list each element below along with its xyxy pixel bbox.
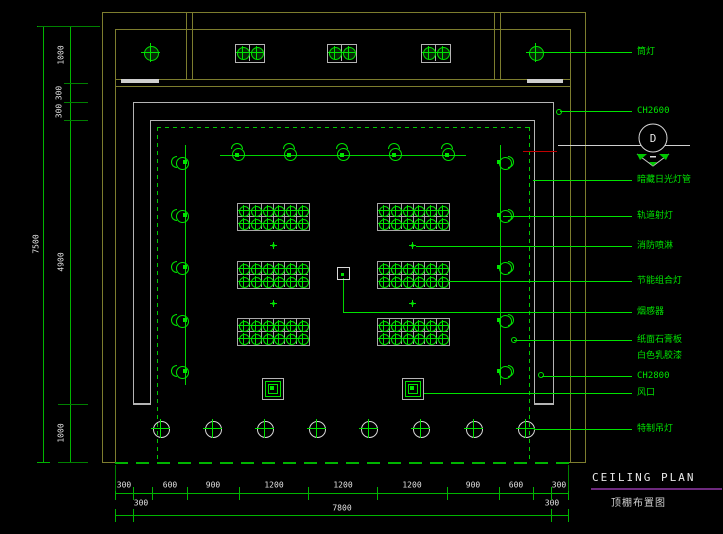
band-downlight-0-cross-v bbox=[150, 43, 151, 62]
combo-light-panel-1-2-lamp-4-0 bbox=[426, 321, 437, 332]
combo-light-panel-1-1-lamp-4-1 bbox=[426, 277, 437, 288]
combo-light-panel-0-2-lamp-1-0-cross-v bbox=[255, 320, 256, 331]
combo-light-panel-1-0-grid-h bbox=[377, 216, 448, 217]
combo-light-panel-1-1-lamp-2-0 bbox=[403, 264, 414, 275]
dim-bottom-1200-2: 1200 bbox=[333, 481, 352, 490]
bulkhead-inner-right bbox=[534, 120, 535, 404]
combo-light-panel-0-1-lamp-0-0-cross-v bbox=[243, 263, 244, 274]
band-divider-left-b bbox=[192, 12, 193, 80]
dim-tick-bottom-10 bbox=[551, 487, 552, 500]
combo-light-panel-1-0-lamp-4-1 bbox=[426, 219, 437, 230]
combo-light-panel-0-1-lamp-2-0-cross-v bbox=[267, 263, 268, 274]
combo-light-panel-1-1-lamp-0-1 bbox=[379, 277, 390, 288]
fire-sprinkler-1-dot bbox=[411, 244, 414, 247]
title-underline bbox=[591, 488, 722, 490]
dim-bottom-row2-left: 300 bbox=[134, 499, 148, 508]
leader-air-vent bbox=[424, 393, 632, 394]
combo-light-panel-1-2-lamp-2-1-cross-v bbox=[407, 333, 408, 344]
band-downlight-0 bbox=[144, 46, 159, 61]
band-downlight-1-cross-v bbox=[535, 43, 536, 62]
leader-concealed-fluorescent bbox=[533, 180, 632, 181]
legend-item-downlight: 筒灯 bbox=[637, 47, 655, 57]
combo-light-panel-0-0-lamp-0-0 bbox=[239, 206, 250, 217]
combo-light-panel-0-1-lamp-4-1-cross-v bbox=[290, 276, 291, 287]
combo-light-panel-1-0-lamp-5-1 bbox=[438, 219, 449, 230]
combo-light-panel-1-1-lamp-0-0 bbox=[379, 264, 390, 275]
band-double-light-0-a-cross-v bbox=[242, 46, 243, 59]
band-double-light-1-a-cross-v bbox=[334, 46, 335, 59]
combo-light-panel-1-0-lamp-2-0 bbox=[403, 206, 414, 217]
combo-light-panel-1-2-lamp-0-1 bbox=[379, 334, 390, 345]
combo-light-panel-0-2-lamp-0-0-cross-v bbox=[243, 320, 244, 331]
combo-light-panel-0-2-lamp-4-0-cross-v bbox=[290, 320, 291, 331]
combo-light-panel-0-1-lamp-5-1-cross-v bbox=[302, 276, 303, 287]
combo-light-panel-0-0-lamp-2-1 bbox=[263, 219, 274, 230]
band-double-light-2-b-cross-v bbox=[442, 46, 443, 59]
combo-light-panel-0-0-lamp-3-0-cross-v bbox=[278, 205, 279, 216]
combo-light-panel-0-1-grid-h bbox=[237, 274, 308, 275]
dim-bottom-900-2: 900 bbox=[466, 481, 480, 490]
dim-ext-bottom-left bbox=[115, 465, 116, 491]
track-spotlight-l-2-clamp bbox=[183, 265, 187, 269]
bulkhead-outer-left bbox=[133, 102, 134, 404]
combo-light-panel-1-1-lamp-3-0-cross-v bbox=[418, 263, 419, 274]
combo-light-panel-1-1-lamp-5-0 bbox=[438, 264, 449, 275]
combo-light-panel-0-0-lamp-2-1-cross-v bbox=[267, 218, 268, 229]
dim-bottom-1200-3: 1200 bbox=[402, 481, 421, 490]
dim-bottom-900-1: 900 bbox=[206, 481, 220, 490]
dim-left-300-1: 300 bbox=[55, 86, 64, 100]
legend-item-ch2800: CH2800 bbox=[637, 371, 670, 381]
combo-light-panel-0-0-lamp-0-0-cross-v bbox=[243, 205, 244, 216]
combo-light-panel-0-1-lamp-2-1 bbox=[263, 277, 274, 288]
smoke-detector-dot bbox=[341, 273, 344, 276]
combo-light-panel-1-0-lamp-5-1-cross-v bbox=[442, 218, 443, 229]
legend-item-gypsum-board: 纸面石膏板 bbox=[637, 335, 682, 345]
combo-light-panel-0-1-lamp-1-0 bbox=[251, 264, 262, 275]
track-spotlight-h-0-clamp bbox=[235, 153, 239, 157]
combo-light-panel-0-2-lamp-2-1-cross-v bbox=[267, 333, 268, 344]
combo-light-panel-1-0-lamp-4-0-cross-v bbox=[430, 205, 431, 216]
special-pendant-3-cross-v bbox=[316, 419, 317, 438]
combo-light-panel-1-1-lamp-5-1 bbox=[438, 277, 449, 288]
band-bottom-line-b bbox=[115, 86, 571, 87]
band-downlight-1 bbox=[529, 46, 544, 61]
combo-light-panel-0-0-lamp-3-0 bbox=[274, 206, 285, 217]
dim-tick-bottom-9 bbox=[533, 487, 534, 500]
detail-marker-letter: D bbox=[650, 132, 657, 145]
combo-light-panel-1-1-lamp-1-1-cross-v bbox=[395, 276, 396, 287]
combo-light-panel-0-1-lamp-5-1 bbox=[298, 277, 309, 288]
inner-wall-left bbox=[115, 29, 116, 463]
band-bottom-line-a bbox=[115, 79, 571, 80]
dim-line-left-total bbox=[43, 26, 44, 462]
combo-light-panel-0-0-lamp-5-0-cross-v bbox=[302, 205, 303, 216]
leader-fire-sprinkler bbox=[416, 246, 632, 247]
track-spotlight-l-4-clamp bbox=[183, 369, 187, 373]
combo-light-panel-0-2-lamp-2-0-cross-v bbox=[267, 320, 268, 331]
combo-light-panel-0-2-lamp-4-1-cross-v bbox=[290, 333, 291, 344]
combo-light-panel-1-0-lamp-2-1-cross-v bbox=[407, 218, 408, 229]
special-pendant-5 bbox=[413, 421, 430, 438]
track-spotlight-h-2-clamp bbox=[340, 153, 344, 157]
combo-light-panel-1-0-lamp-3-0-cross-v bbox=[418, 205, 419, 216]
combo-light-panel-1-2-lamp-2-0 bbox=[403, 321, 414, 332]
combo-light-panel-1-1-lamp-3-1-cross-v bbox=[418, 276, 419, 287]
combo-light-panel-1-2-lamp-1-1 bbox=[391, 334, 402, 345]
combo-light-panel-0-0-lamp-1-0-cross-v bbox=[255, 205, 256, 216]
combo-light-panel-1-1-lamp-2-1-cross-v bbox=[407, 276, 408, 287]
dim-tick-bottom-1 bbox=[133, 487, 134, 500]
track-spotlight-r-2-clamp bbox=[497, 265, 501, 269]
leader-track-spotlight bbox=[503, 216, 632, 217]
combo-light-panel-1-0-lamp-1-1-cross-v bbox=[395, 218, 396, 229]
combo-light-panel-0-1-lamp-3-1 bbox=[274, 277, 285, 288]
drawing-title-english: CEILING PLAN bbox=[592, 471, 695, 484]
dim-tick-bottom-3 bbox=[187, 487, 188, 500]
combo-light-panel-0-0-lamp-1-1-cross-v bbox=[255, 218, 256, 229]
special-pendant-2-cross-v bbox=[264, 419, 265, 438]
leader-dot-ch2600 bbox=[556, 109, 562, 115]
smoke-detector-leader-vertical bbox=[343, 278, 344, 312]
detail-marker-fill-right bbox=[659, 154, 669, 160]
dim-ext-left-5 bbox=[58, 462, 88, 463]
track-spotlight-r-1-clamp bbox=[497, 213, 501, 217]
leader-gypsum-board bbox=[514, 340, 632, 341]
special-pendant-7 bbox=[518, 421, 535, 438]
combo-light-panel-0-0-lamp-4-1-cross-v bbox=[290, 218, 291, 229]
band-divider-right-a bbox=[494, 12, 495, 80]
combo-light-panel-0-0-lamp-5-0 bbox=[298, 206, 309, 217]
combo-light-panel-0-2-lamp-5-0-cross-v bbox=[302, 320, 303, 331]
combo-light-panel-0-1-lamp-0-1 bbox=[239, 277, 250, 288]
band-double-light-0-b bbox=[251, 47, 264, 60]
combo-light-panel-1-1-lamp-2-0-cross-v bbox=[407, 263, 408, 274]
leader-smoke-detector bbox=[343, 312, 632, 313]
dim-left-1000-top: 1000 bbox=[57, 45, 66, 64]
bulkhead-outer-top bbox=[133, 102, 553, 103]
combo-light-panel-0-0-lamp-1-0 bbox=[251, 206, 262, 217]
combo-light-panel-1-2-lamp-1-0 bbox=[391, 321, 402, 332]
dim-bottom-total: 7800 bbox=[332, 504, 351, 513]
combo-light-panel-1-1-lamp-1-0 bbox=[391, 264, 402, 275]
track-spotlight-r-0-clamp bbox=[497, 160, 501, 164]
combo-light-panel-1-1-lamp-4-0-cross-v bbox=[430, 263, 431, 274]
band-double-light-1-b bbox=[343, 47, 356, 60]
air-vent-0-core bbox=[270, 386, 274, 390]
recess-dashed-right bbox=[529, 127, 530, 463]
band-double-light-0-b-cross-v bbox=[256, 46, 257, 59]
band-double-light-1-b-cross-v bbox=[348, 46, 349, 59]
combo-light-panel-0-0-lamp-3-1-cross-v bbox=[278, 218, 279, 229]
combo-light-panel-0-1-lamp-0-0 bbox=[239, 264, 250, 275]
combo-light-panel-1-0-lamp-3-0 bbox=[414, 206, 425, 217]
outer-wall-left bbox=[102, 12, 103, 463]
leader-downlight bbox=[541, 52, 632, 53]
legend-item-ch2600: CH2600 bbox=[637, 106, 670, 116]
band-beam-right bbox=[527, 79, 563, 83]
dim-tick-bottom-7 bbox=[447, 487, 448, 500]
leader-dot-ch2800 bbox=[538, 372, 544, 378]
special-pendant-7-cross-v bbox=[525, 419, 526, 438]
combo-light-panel-1-1-lamp-1-1 bbox=[391, 277, 402, 288]
special-pendant-1-cross-v bbox=[212, 419, 213, 438]
track-spotlight-h-4-clamp bbox=[445, 153, 449, 157]
combo-light-panel-0-2-lamp-1-0 bbox=[251, 321, 262, 332]
combo-light-panel-1-1-lamp-5-0-cross-v bbox=[442, 263, 443, 274]
band-divider-left-a bbox=[186, 12, 187, 80]
dim-tick-bottom2-0 bbox=[115, 509, 116, 522]
detail-marker-fill-left bbox=[637, 154, 647, 160]
combo-light-panel-0-1-lamp-5-0 bbox=[298, 264, 309, 275]
combo-light-panel-1-0-lamp-4-1-cross-v bbox=[430, 218, 431, 229]
bottom-wall-hook-right bbox=[568, 462, 586, 463]
combo-light-panel-1-2-lamp-3-1 bbox=[414, 334, 425, 345]
dim-tick-bottom-4 bbox=[239, 487, 240, 500]
combo-light-panel-1-1-lamp-4-0 bbox=[426, 264, 437, 275]
combo-light-panel-1-2-lamp-1-1-cross-v bbox=[395, 333, 396, 344]
combo-light-panel-1-2-lamp-5-1 bbox=[438, 334, 449, 345]
combo-light-panel-0-1-lamp-2-1-cross-v bbox=[267, 276, 268, 287]
combo-light-panel-1-0-lamp-0-1-cross-v bbox=[383, 218, 384, 229]
combo-light-panel-0-1-lamp-2-0 bbox=[263, 264, 274, 275]
combo-light-panel-0-2-lamp-5-0 bbox=[298, 321, 309, 332]
combo-light-panel-1-0-lamp-0-1 bbox=[379, 219, 390, 230]
combo-light-panel-1-2-lamp-2-0-cross-v bbox=[407, 320, 408, 331]
combo-light-panel-0-2-lamp-2-0 bbox=[263, 321, 274, 332]
combo-light-panel-0-0-lamp-4-0 bbox=[286, 206, 297, 217]
leader-ch2600 bbox=[560, 111, 632, 112]
combo-light-panel-0-1-lamp-0-1-cross-v bbox=[243, 276, 244, 287]
legend-item-smoke-detector: 烟感器 bbox=[637, 307, 664, 317]
bulkhead-inner-top bbox=[150, 120, 534, 121]
dim-tick-bottom2-3 bbox=[568, 509, 569, 522]
combo-light-panel-1-1-lamp-2-1 bbox=[403, 277, 414, 288]
outer-wall-top bbox=[102, 12, 585, 13]
legend-item-air-vent: 风口 bbox=[637, 388, 655, 398]
combo-light-panel-0-0-lamp-0-1 bbox=[239, 219, 250, 230]
legend-item-special-pendant: 特制吊灯 bbox=[637, 424, 673, 434]
leader-ch2800 bbox=[542, 376, 632, 377]
combo-light-panel-1-1-lamp-0-0-cross-v bbox=[383, 263, 384, 274]
combo-light-panel-1-2-lamp-1-0-cross-v bbox=[395, 320, 396, 331]
combo-light-panel-1-2-lamp-3-0 bbox=[414, 321, 425, 332]
band-double-light-2-a-cross-v bbox=[428, 46, 429, 59]
combo-light-panel-1-0-lamp-1-1 bbox=[391, 219, 402, 230]
combo-light-panel-0-2-lamp-0-1 bbox=[239, 334, 250, 345]
combo-light-panel-0-2-lamp-4-1 bbox=[286, 334, 297, 345]
leader-energy-saving-light bbox=[449, 281, 632, 282]
air-vent-1-core bbox=[410, 386, 414, 390]
dim-bottom-row2-right: 300 bbox=[545, 499, 559, 508]
track-spotlight-l-1-clamp bbox=[183, 213, 187, 217]
special-pendant-0-cross-v bbox=[160, 419, 161, 438]
dim-tick-left-total-1 bbox=[37, 462, 50, 463]
legend-item-concealed-fluorescent: 暗藏日光灯管 bbox=[637, 175, 691, 185]
combo-light-panel-1-0-lamp-4-0 bbox=[426, 206, 437, 217]
combo-light-panel-0-1-lamp-4-1 bbox=[286, 277, 297, 288]
special-pendant-3 bbox=[309, 421, 326, 438]
combo-light-panel-0-2-lamp-0-0 bbox=[239, 321, 250, 332]
special-pendant-2 bbox=[257, 421, 274, 438]
leader-dot-gypsum-board bbox=[511, 337, 517, 343]
combo-light-panel-1-2-lamp-0-1-cross-v bbox=[383, 333, 384, 344]
combo-light-panel-0-1-lamp-3-0-cross-v bbox=[278, 263, 279, 274]
dim-tick-bottom2-2 bbox=[551, 509, 552, 522]
combo-light-panel-1-0-lamp-5-0-cross-v bbox=[442, 205, 443, 216]
dim-line-bottom-row1 bbox=[115, 493, 568, 494]
dim-bottom-600-1: 600 bbox=[163, 481, 177, 490]
combo-light-panel-1-2-lamp-3-1-cross-v bbox=[418, 333, 419, 344]
combo-light-panel-0-0-lamp-4-0-cross-v bbox=[290, 205, 291, 216]
combo-light-panel-0-2-lamp-1-1 bbox=[251, 334, 262, 345]
combo-light-panel-1-2-lamp-5-1-cross-v bbox=[442, 333, 443, 344]
combo-light-panel-1-2-lamp-4-1-cross-v bbox=[430, 333, 431, 344]
legend-item-energy-saving-light: 节能组合灯 bbox=[637, 276, 682, 286]
combo-light-panel-0-1-lamp-1-1-cross-v bbox=[255, 276, 256, 287]
ceiling-plan-drawing: D 筒灯 CH2600 暗藏日光灯管 轨道射灯 消防喷淋 节能组合灯 烟感器 纸… bbox=[0, 0, 723, 534]
track-spotlight-l-3-clamp bbox=[183, 318, 187, 322]
special-pendant-6 bbox=[466, 421, 483, 438]
combo-light-panel-1-2-lamp-2-1 bbox=[403, 334, 414, 345]
section-cut-line bbox=[523, 151, 557, 152]
dim-left-total: 7500 bbox=[32, 234, 41, 253]
dim-bottom-600-2: 600 bbox=[509, 481, 523, 490]
dim-tick-bottom-5 bbox=[308, 487, 309, 500]
combo-light-panel-1-0-lamp-3-1-cross-v bbox=[418, 218, 419, 229]
combo-light-panel-0-2-lamp-0-1-cross-v bbox=[243, 333, 244, 344]
band-double-light-2-a bbox=[423, 47, 436, 60]
legend-item-white-latex-paint: 白色乳胶漆 bbox=[637, 351, 682, 361]
special-pendant-5-cross-v bbox=[420, 419, 421, 438]
combo-light-panel-0-0-lamp-0-1-cross-v bbox=[243, 218, 244, 229]
combo-light-panel-1-0-lamp-5-0 bbox=[438, 206, 449, 217]
leader-special-pendant bbox=[534, 429, 632, 430]
combo-light-panel-0-2-grid-h bbox=[237, 331, 308, 332]
combo-light-panel-0-0-lamp-3-1 bbox=[274, 219, 285, 230]
dim-left-4900: 4900 bbox=[57, 252, 66, 271]
dim-left-300-2: 300 bbox=[55, 104, 64, 118]
combo-light-panel-0-0-lamp-2-0-cross-v bbox=[267, 205, 268, 216]
bulkhead-cap-right bbox=[534, 403, 554, 405]
combo-light-panel-1-0-lamp-2-0-cross-v bbox=[407, 205, 408, 216]
combo-light-panel-1-1-lamp-0-1-cross-v bbox=[383, 276, 384, 287]
dim-ext-left-0 bbox=[38, 26, 100, 27]
combo-light-panel-0-0-grid-h bbox=[237, 216, 308, 217]
legend-item-track-spotlight: 轨道射灯 bbox=[637, 211, 673, 221]
combo-light-panel-0-1-lamp-3-0 bbox=[274, 264, 285, 275]
combo-light-panel-1-2-lamp-3-0-cross-v bbox=[418, 320, 419, 331]
combo-light-panel-0-2-lamp-2-1 bbox=[263, 334, 274, 345]
track-spotlight-r-3-clamp bbox=[497, 318, 501, 322]
dim-bottom-1200-1: 1200 bbox=[264, 481, 283, 490]
combo-light-panel-1-1-grid-h bbox=[377, 274, 448, 275]
combo-light-panel-1-0-lamp-2-1 bbox=[403, 219, 414, 230]
special-pendant-0 bbox=[153, 421, 170, 438]
combo-light-panel-0-2-lamp-3-0 bbox=[274, 321, 285, 332]
band-double-light-1-a bbox=[329, 47, 342, 60]
combo-light-panel-0-1-lamp-3-1-cross-v bbox=[278, 276, 279, 287]
combo-light-panel-1-1-lamp-4-1-cross-v bbox=[430, 276, 431, 287]
dim-ext-left-1 bbox=[64, 83, 88, 84]
dim-tick-bottom-8 bbox=[499, 487, 500, 500]
combo-light-panel-0-1-lamp-5-0-cross-v bbox=[302, 263, 303, 274]
special-pendant-1 bbox=[205, 421, 222, 438]
outer-wall-right bbox=[585, 12, 586, 463]
combo-light-panel-0-1-lamp-1-1 bbox=[251, 277, 262, 288]
detail-marker-d: D bbox=[630, 116, 676, 168]
band-double-light-0-a bbox=[237, 47, 250, 60]
drawing-title-chinese: 顶棚布置图 bbox=[611, 494, 666, 509]
combo-light-panel-0-0-lamp-5-1 bbox=[298, 219, 309, 230]
combo-light-panel-1-2-grid-h bbox=[377, 331, 448, 332]
combo-light-panel-1-0-lamp-0-0 bbox=[379, 206, 390, 217]
fire-sprinkler-3-dot bbox=[411, 302, 414, 305]
combo-light-panel-1-2-lamp-5-0 bbox=[438, 321, 449, 332]
dim-tick-bottom-2 bbox=[152, 487, 153, 500]
combo-light-panel-0-2-lamp-4-0 bbox=[286, 321, 297, 332]
combo-light-panel-1-2-lamp-4-0-cross-v bbox=[430, 320, 431, 331]
dim-ext-left-3 bbox=[64, 120, 88, 121]
combo-light-panel-0-2-lamp-3-1 bbox=[274, 334, 285, 345]
combo-light-panel-1-0-lamp-0-0-cross-v bbox=[383, 205, 384, 216]
combo-light-panel-0-0-lamp-5-1-cross-v bbox=[302, 218, 303, 229]
track-spotlight-r-4-clamp bbox=[497, 369, 501, 373]
bulkhead-cap-left bbox=[133, 403, 151, 405]
track-spotlight-h-3-clamp bbox=[392, 153, 396, 157]
recess-dashed-left bbox=[157, 127, 158, 463]
combo-light-panel-0-2-lamp-3-0-cross-v bbox=[278, 320, 279, 331]
dim-left-1000-bot: 1000 bbox=[57, 423, 66, 442]
combo-light-panel-0-2-lamp-1-1-cross-v bbox=[255, 333, 256, 344]
fire-sprinkler-2-dot bbox=[272, 302, 275, 305]
fire-sprinkler-0-dot bbox=[272, 244, 275, 247]
dim-ext-left-4 bbox=[58, 404, 88, 405]
dim-ext-left-2 bbox=[64, 102, 88, 103]
combo-light-panel-0-0-lamp-1-1 bbox=[251, 219, 262, 230]
combo-light-panel-0-1-lamp-1-0-cross-v bbox=[255, 263, 256, 274]
track-spotlight-l-0-clamp bbox=[183, 160, 187, 164]
bulkhead-inner-left bbox=[150, 120, 151, 404]
special-pendant-4-cross-v bbox=[368, 419, 369, 438]
combo-light-panel-1-1-lamp-3-0 bbox=[414, 264, 425, 275]
combo-light-panel-1-1-lamp-3-1 bbox=[414, 277, 425, 288]
combo-light-panel-1-2-lamp-0-0-cross-v bbox=[383, 320, 384, 331]
band-double-light-2-b bbox=[437, 47, 450, 60]
band-beam-left bbox=[121, 79, 159, 83]
combo-light-panel-0-2-lamp-3-1-cross-v bbox=[278, 333, 279, 344]
special-pendant-6-cross-v bbox=[473, 419, 474, 438]
combo-light-panel-0-1-lamp-4-0-cross-v bbox=[290, 263, 291, 274]
band-divider-right-b bbox=[500, 12, 501, 80]
dim-tick-bottom2-1 bbox=[133, 509, 134, 522]
combo-light-panel-1-0-lamp-1-0-cross-v bbox=[395, 205, 396, 216]
special-pendant-4 bbox=[361, 421, 378, 438]
dim-line-bottom-row2 bbox=[115, 515, 568, 516]
recess-dashed-top bbox=[157, 127, 529, 128]
combo-light-panel-1-1-lamp-1-0-cross-v bbox=[395, 263, 396, 274]
combo-light-panel-1-0-lamp-1-0 bbox=[391, 206, 402, 217]
combo-light-panel-0-2-lamp-5-1 bbox=[298, 334, 309, 345]
combo-light-panel-1-2-lamp-5-0-cross-v bbox=[442, 320, 443, 331]
track-spotlight-h-1-clamp bbox=[287, 153, 291, 157]
combo-light-panel-1-0-lamp-3-1 bbox=[414, 219, 425, 230]
dim-tick-bottom-6 bbox=[377, 487, 378, 500]
dim-ext-bottom-right bbox=[568, 465, 569, 491]
combo-light-panel-0-0-lamp-4-1 bbox=[286, 219, 297, 230]
bulkhead-outer-right bbox=[553, 102, 554, 404]
dim-line-left-chain bbox=[70, 26, 71, 462]
